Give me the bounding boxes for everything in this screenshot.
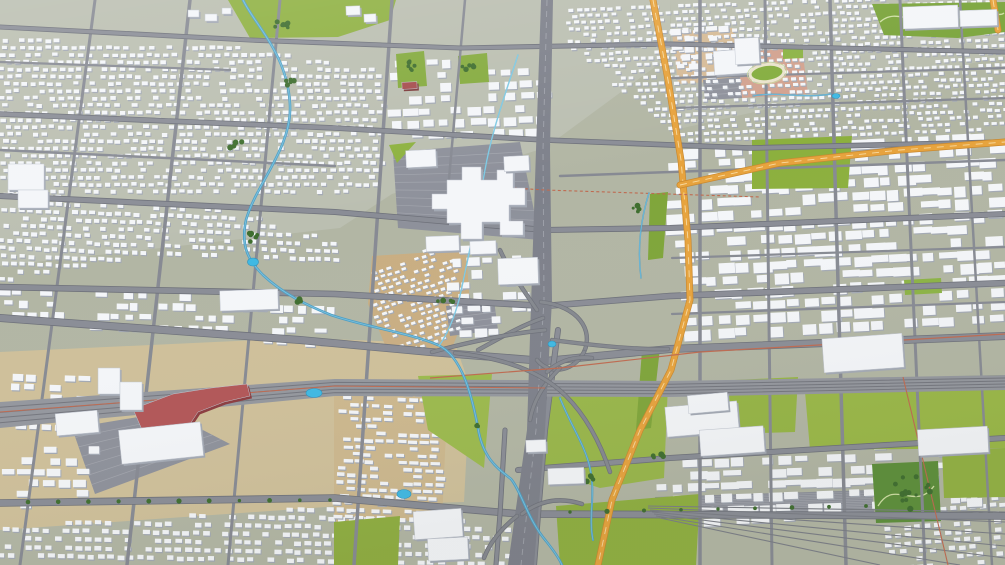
pond-northeast (832, 94, 840, 99)
apartment-tower-west-b (18, 190, 50, 210)
greenbelt-building-a (548, 467, 586, 486)
green-strip-southwest (334, 516, 400, 565)
towers-northeast (734, 37, 761, 66)
retail-west-b (55, 410, 101, 438)
distribution-center (498, 257, 541, 286)
tower-southwest-b (120, 382, 144, 412)
cinema-south-b (427, 537, 470, 563)
warehouse-north (220, 289, 280, 313)
office-slab-east (822, 333, 906, 375)
apartment-tower-west-a (8, 164, 46, 192)
city-3d-render-stage (0, 0, 1005, 565)
north-small-a (346, 6, 362, 18)
tower-southwest-a (98, 368, 122, 396)
pond-trailer (548, 341, 556, 347)
big-box-east-c (687, 392, 730, 416)
north-small-b (364, 14, 378, 24)
pond-creek-west (248, 258, 259, 266)
mall-anchor-d (470, 240, 498, 256)
park-pavilion-a (188, 10, 201, 19)
pond-apartments (397, 490, 411, 499)
pond-southwest (306, 389, 322, 398)
small-red-building (402, 82, 419, 92)
cinema-south (413, 508, 465, 541)
greenbelt-building-b (526, 440, 548, 455)
city-3d-render (0, 0, 1005, 565)
mall-anchor-a (406, 149, 439, 170)
big-box-ne-a (903, 5, 960, 31)
mall-anchor-c (426, 235, 461, 253)
big-box-east-b (699, 426, 766, 459)
warehouse-southeast (917, 426, 990, 458)
big-box-ne-b (960, 9, 999, 28)
mall-anchor-b (504, 155, 531, 173)
park-pavilion-b (205, 14, 219, 23)
